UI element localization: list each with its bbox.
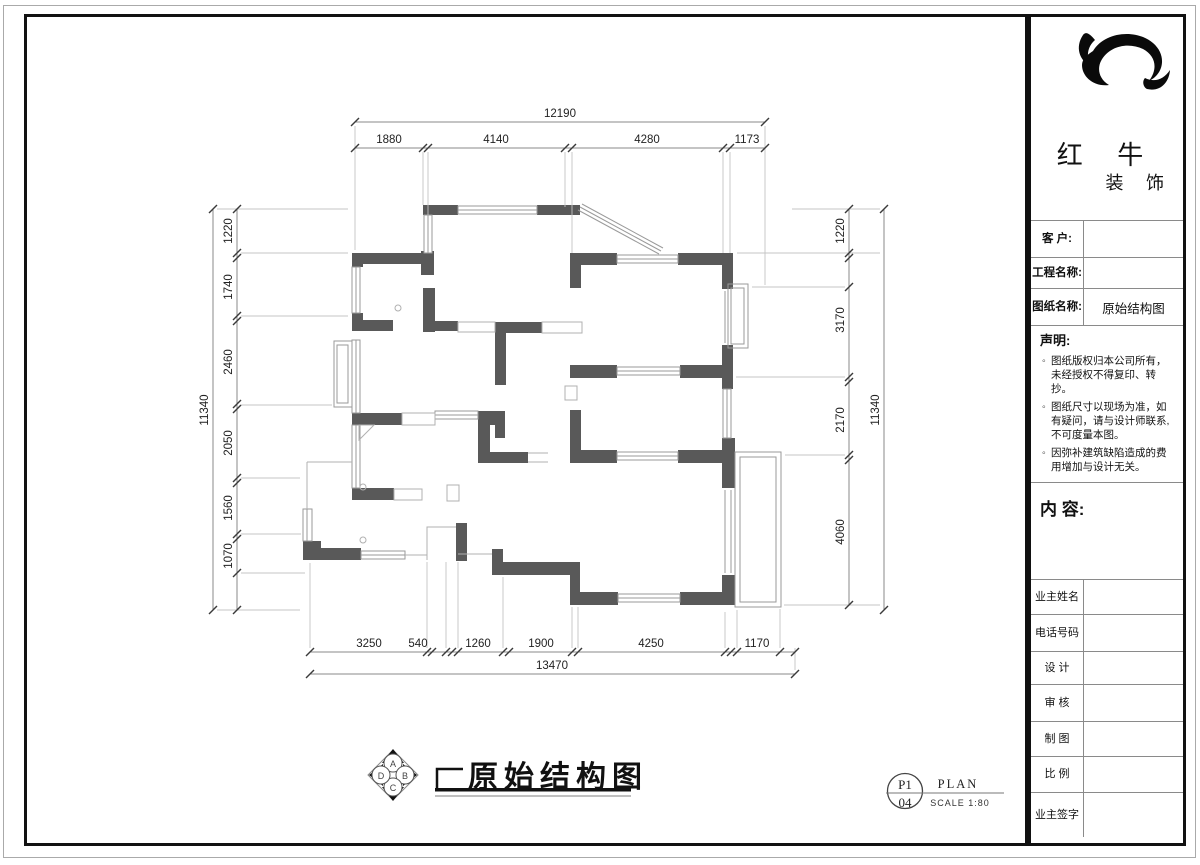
dim-top-seg: 4280 — [634, 134, 660, 146]
sign-row-label: 制 图 — [1031, 722, 1084, 756]
drawing-title: 原始结构图 — [468, 752, 648, 796]
sheet-number: 04 — [899, 795, 913, 810]
field-label: 图纸名称: — [1031, 289, 1084, 325]
dim-bottom-total: 13470 — [536, 660, 568, 672]
sign-row-value — [1084, 757, 1183, 792]
plan-details — [307, 305, 582, 560]
sign-row-label: 电话号码 — [1031, 615, 1084, 651]
dim-left-seg: 1070 — [223, 543, 235, 569]
dim-right-total: 11340 — [870, 394, 882, 425]
compass-letter-a: A — [390, 759, 396, 769]
dim-bottom-seg: 1900 — [528, 638, 554, 650]
brand-suffix: 装 饰 — [1106, 169, 1174, 195]
structural-walls — [303, 205, 735, 605]
dim-bottom-seg: 1170 — [745, 638, 770, 650]
sign-row-label: 业主签字 — [1031, 793, 1084, 837]
dim-top-seg: 1173 — [735, 134, 760, 146]
dim-right-seg: 4060 — [835, 519, 847, 545]
dim-top-seg: 1880 — [376, 134, 402, 146]
sign-row-owner-name: 业主姓名 — [1031, 579, 1183, 614]
compass-letter-d: D — [378, 771, 385, 781]
field-row-customer: 客 户: — [1031, 220, 1183, 257]
sign-row-scale: 比 例 — [1031, 756, 1183, 792]
red-bull-logo-icon — [1031, 17, 1183, 132]
title-block-panel: 红 牛 装 饰 客 户: 工程名称: 图纸名称: 原始结构图 声明: 图纸版权归… — [1028, 14, 1186, 846]
content-heading: 内 容: — [1031, 482, 1183, 579]
sign-row-owner-signature: 业主签字 — [1031, 792, 1183, 837]
statement-heading: 声明: — [1040, 334, 1176, 348]
dim-right-seg: 1220 — [835, 218, 847, 244]
field-label: 工程名称: — [1031, 258, 1084, 288]
sign-row-value — [1084, 580, 1183, 614]
dim-left-seg: 2050 — [223, 430, 235, 456]
statement-section: 声明: 图纸版权归本公司所有，未经授权不得复印、转抄。 图纸尺寸以现场为准，如有… — [1031, 325, 1183, 482]
sign-row-review: 审 核 — [1031, 684, 1183, 721]
dim-left-seg: 1560 — [223, 495, 235, 521]
compass-icon: A B C D — [368, 749, 418, 801]
compass-letter-b: B — [402, 771, 408, 781]
sign-row-value — [1084, 793, 1183, 837]
dim-right-seg: 3170 — [835, 307, 847, 333]
field-row-project-name: 工程名称: — [1031, 257, 1183, 288]
dim-bottom-seg: 540 — [408, 638, 427, 650]
dim-left-total: 11340 — [199, 394, 211, 425]
brand-section: 红 牛 装 饰 — [1031, 17, 1183, 220]
sign-row-drafting: 制 图 — [1031, 721, 1183, 756]
sign-row-value — [1084, 615, 1183, 651]
field-label: 客 户: — [1031, 221, 1084, 257]
sign-row-label: 业主姓名 — [1031, 580, 1084, 614]
plan-reference: P1 04 PLAN SCALE 1:80 — [886, 774, 1004, 811]
statement-item: 图纸版权归本公司所有，未经授权不得复印、转抄。 — [1042, 354, 1176, 396]
dim-left-seg: 1220 — [223, 218, 235, 244]
dim-bottom-seg: 4250 — [638, 638, 664, 650]
sign-row-value — [1084, 685, 1183, 721]
sign-row-design: 设 计 — [1031, 651, 1183, 684]
dim-left-seg: 2460 — [223, 349, 235, 375]
dim-bottom-seg: 1260 — [465, 638, 491, 650]
statement-item: 因弥补建筑缺陷造成的费用增加与设计无关。 — [1042, 446, 1176, 474]
sign-row-value — [1084, 652, 1183, 684]
sheet-code: P1 — [898, 777, 912, 792]
dim-right-seg: 2170 — [835, 407, 847, 433]
statement-item: 图纸尺寸以现场为准，如有疑问，请与设计师联系,不可度量本图。 — [1042, 400, 1176, 442]
compass-letter-c: C — [390, 783, 397, 793]
plan-type-label: PLAN — [938, 777, 979, 791]
dim-left-seg: 1740 — [223, 274, 235, 300]
brand-name: 红 牛 — [1031, 135, 1183, 172]
dimension-labels: 12190 1880 4140 4280 1173 11340 1220 174… — [199, 108, 882, 672]
field-value: 原始结构图 — [1084, 298, 1183, 317]
sign-row-label: 比 例 — [1031, 757, 1084, 792]
plan-scale-label: SCALE 1:80 — [930, 798, 990, 808]
dimension-lines — [209, 118, 888, 678]
dim-top-total: 12190 — [544, 108, 576, 120]
drawing-sheet: 12190 1880 4140 4280 1173 11340 1220 174… — [0, 0, 1200, 865]
statement-list: 图纸版权归本公司所有，未经授权不得复印、转抄。 图纸尺寸以现场为准，如有疑问，请… — [1038, 354, 1176, 474]
field-row-drawing-name: 图纸名称: 原始结构图 — [1031, 288, 1183, 325]
sign-row-label: 审 核 — [1031, 685, 1084, 721]
floor-plan: 12190 1880 4140 4280 1173 11340 1220 174… — [0, 0, 1200, 865]
sign-row-phone: 电话号码 — [1031, 614, 1183, 651]
dim-bottom-seg: 3250 — [356, 638, 382, 650]
sign-row-value — [1084, 722, 1183, 756]
dim-top-seg: 4140 — [483, 134, 509, 146]
sign-row-label: 设 计 — [1031, 652, 1084, 684]
